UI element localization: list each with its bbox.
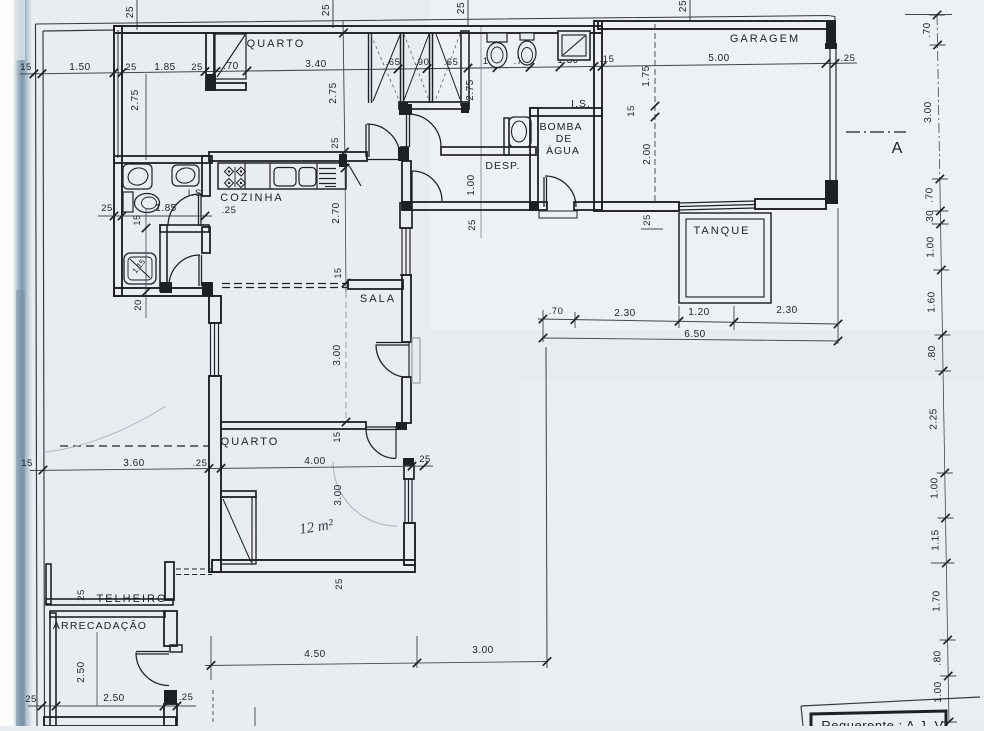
svg-text:2.70: 2.70	[331, 202, 342, 223]
svg-text:1.85: 1.85	[155, 203, 176, 214]
svg-text:.80: .80	[927, 345, 938, 360]
svg-text:Requerente : A.J. V.: Requerente : A.J. V.	[821, 718, 946, 726]
svg-text:.65: .65	[386, 57, 401, 68]
svg-text:TELHEIRO: TELHEIRO	[96, 593, 167, 605]
svg-text:I.S: I.S	[188, 188, 203, 199]
svg-text:1.20: 1.20	[688, 307, 709, 318]
svg-text:.70: .70	[549, 306, 564, 317]
svg-text:2.25: 2.25	[928, 408, 939, 429]
svg-text:25: 25	[25, 694, 37, 705]
svg-text:25: 25	[642, 214, 653, 226]
svg-text:2.50: 2.50	[103, 693, 124, 704]
svg-text:4.50: 4.50	[304, 649, 325, 660]
svg-text:A: A	[892, 140, 903, 157]
svg-text:25: 25	[419, 454, 431, 465]
svg-text:25: 25	[330, 137, 341, 149]
svg-text:1.75: 1.75	[641, 65, 652, 86]
svg-text:20: 20	[133, 299, 144, 311]
svg-text:1.00: 1.00	[466, 174, 477, 195]
svg-text:3.00: 3.00	[923, 101, 934, 122]
svg-text:2.50: 2.50	[76, 661, 87, 682]
svg-text:2.30: 2.30	[776, 305, 797, 316]
svg-text:QUARTO: QUARTO	[247, 38, 306, 50]
svg-text:15: 15	[333, 267, 343, 278]
svg-text:1.60: 1.60	[926, 291, 937, 312]
svg-text:SALA: SALA	[360, 293, 396, 305]
svg-text:.25: .25	[179, 692, 194, 703]
svg-text:1.70: 1.70	[931, 590, 942, 611]
svg-text:15: 15	[332, 431, 342, 442]
svg-text:.30: .30	[925, 210, 936, 225]
svg-text:ARRECADAÇÃO: ARRECADAÇÃO	[53, 619, 147, 632]
svg-text:.70: .70	[925, 187, 936, 202]
svg-text:15: 15	[132, 214, 142, 225]
svg-text:GARAGEM: GARAGEM	[730, 33, 800, 45]
svg-text:I.S.: I.S.	[571, 98, 591, 110]
svg-text:25: 25	[321, 4, 332, 16]
svg-text:25: 25	[467, 219, 478, 231]
svg-text:25: 25	[678, 0, 689, 12]
svg-text:COZINHA: COZINHA	[220, 192, 284, 204]
svg-text:25: 25	[191, 62, 203, 73]
svg-text:3.00: 3.00	[333, 484, 344, 505]
svg-text:.25: .25	[193, 458, 208, 469]
svg-text:2.75: 2.75	[465, 79, 476, 100]
svg-text:ÁGUA: ÁGUA	[546, 144, 580, 157]
svg-text:2.75: 2.75	[328, 82, 339, 103]
svg-text:.25: .25	[841, 53, 856, 64]
svg-text:15: 15	[21, 458, 33, 469]
svg-text:5.00: 5.00	[708, 53, 729, 64]
svg-text:1.15: 1.15	[930, 529, 941, 550]
svg-text:1.85: 1.85	[154, 62, 175, 73]
svg-text:DE: DE	[556, 133, 573, 145]
svg-text:15: 15	[626, 105, 637, 117]
svg-text:25: 25	[334, 578, 345, 590]
svg-text:3.00: 3.00	[332, 344, 343, 365]
svg-text:.25: .25	[222, 205, 237, 216]
svg-text:2.00: 2.00	[642, 143, 653, 164]
svg-text:.80: .80	[932, 650, 943, 665]
svg-text:25: 25	[101, 203, 113, 214]
svg-text:2.30: 2.30	[614, 308, 635, 319]
svg-text:3.40: 3.40	[305, 59, 326, 70]
svg-text:4.00: 4.00	[304, 456, 325, 467]
svg-text:25: 25	[456, 2, 467, 14]
svg-text:25: 25	[125, 62, 137, 73]
svg-text:1.00: 1.00	[925, 236, 936, 257]
svg-text:2.75: 2.75	[130, 89, 141, 110]
svg-text:25: 25	[125, 6, 136, 18]
svg-text:25: 25	[76, 589, 87, 601]
svg-text:BOMBA: BOMBA	[540, 121, 583, 133]
svg-text:TANQUE: TANQUE	[693, 225, 750, 237]
svg-text:.70: .70	[223, 61, 238, 72]
svg-text:DESP.: DESP.	[485, 160, 520, 172]
svg-text:.70: .70	[922, 22, 933, 37]
svg-text:6.50: 6.50	[684, 329, 705, 340]
svg-text:3.00: 3.00	[472, 645, 493, 656]
svg-text:15: 15	[20, 62, 32, 73]
svg-text:QUARTO: QUARTO	[221, 436, 280, 448]
svg-text:1.50: 1.50	[69, 62, 90, 73]
svg-text:3.60: 3.60	[123, 458, 144, 469]
svg-text:1.00: 1.00	[930, 477, 941, 498]
